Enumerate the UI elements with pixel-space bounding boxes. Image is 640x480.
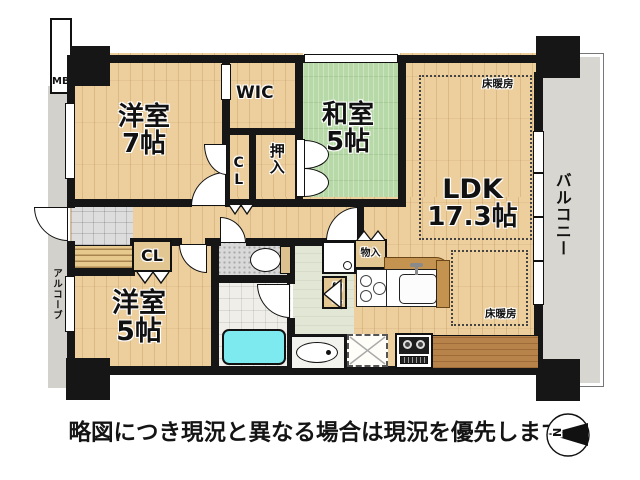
room-name: 洋室	[112, 290, 166, 318]
window	[533, 131, 544, 305]
floor-heating-label-lower: 床暖房	[485, 309, 517, 320]
washbasin-bowl	[296, 342, 338, 363]
room-name: 洋室	[118, 104, 170, 131]
washing-machine-drain	[343, 261, 352, 270]
bathtub	[222, 329, 286, 365]
refrigerator-space	[347, 334, 388, 367]
entrance-step	[71, 245, 133, 269]
wall	[67, 199, 192, 207]
wall	[398, 58, 406, 205]
room-label-western7: 洋室 7帖	[118, 104, 170, 159]
grill-stove-grill	[400, 356, 428, 364]
kitchen-bottom-counter	[431, 335, 538, 368]
wall	[534, 72, 543, 135]
pillar	[70, 46, 110, 86]
cooktop-burner	[373, 282, 386, 295]
room-size: 5帖	[322, 129, 374, 156]
window	[304, 54, 398, 63]
grill-stove-burner	[416, 340, 425, 349]
kitchen-sink	[399, 274, 437, 304]
pillar	[536, 359, 580, 401]
wall	[228, 128, 303, 135]
washing-machine-pan	[322, 241, 356, 274]
entrance-door-arc	[34, 207, 68, 241]
room-name: 和室	[322, 102, 374, 129]
toilet-bowl	[250, 248, 281, 272]
grill-stove-burner	[403, 340, 412, 349]
entrance-tile	[71, 204, 133, 245]
closet-lower-box: CL	[132, 240, 172, 272]
window	[65, 276, 75, 332]
storage-lower-label: 物入	[329, 282, 340, 304]
room-size: 5帖	[112, 318, 166, 346]
storage-lower-box: 物入	[322, 276, 347, 309]
room-label-japanese5: 和室 5帖	[322, 102, 374, 157]
room-size: 7帖	[118, 131, 170, 158]
room-label-oshiire: 押入	[268, 143, 284, 175]
storage-upper-box: 物入	[354, 239, 387, 269]
cooktop-burner	[360, 290, 372, 302]
alcove-label: アルコーブ	[51, 268, 61, 321]
wall	[249, 134, 256, 205]
room-name: LDK	[425, 176, 520, 204]
caption: 略図につき現況と異なる場合は現況を優先します	[68, 415, 563, 447]
closet-lower-label: CL	[141, 248, 163, 265]
wall	[73, 268, 135, 276]
window	[65, 103, 75, 179]
room-label-ldk: LDK 17.3帖	[425, 176, 520, 232]
sliding-door-wic	[221, 64, 231, 100]
wall	[225, 199, 406, 207]
washbasin-drain	[326, 350, 331, 355]
balcony-label: バルコニー	[553, 172, 570, 257]
cooktop-burner	[360, 275, 372, 287]
room-label-closet-upper: CL	[231, 155, 246, 189]
room-size: 17.3帖	[425, 204, 520, 231]
storage-upper-label: 物入	[361, 249, 381, 260]
toilet-tank	[280, 246, 291, 274]
balcony: バルコニー	[538, 53, 604, 387]
floor-plan-page: { "caption": "略図につき現況と異なる場合は現況を優先します", "…	[0, 0, 640, 480]
wall	[211, 275, 295, 283]
room-label-western5: 洋室 5帖	[112, 290, 166, 347]
room-label-wic: WIC	[236, 85, 274, 103]
kitchen-counter-edge-right	[436, 260, 450, 308]
pillar	[66, 358, 110, 400]
pillar	[536, 36, 580, 78]
floor-heating-label-upper: 床暖房	[482, 79, 514, 90]
wall	[211, 238, 219, 368]
